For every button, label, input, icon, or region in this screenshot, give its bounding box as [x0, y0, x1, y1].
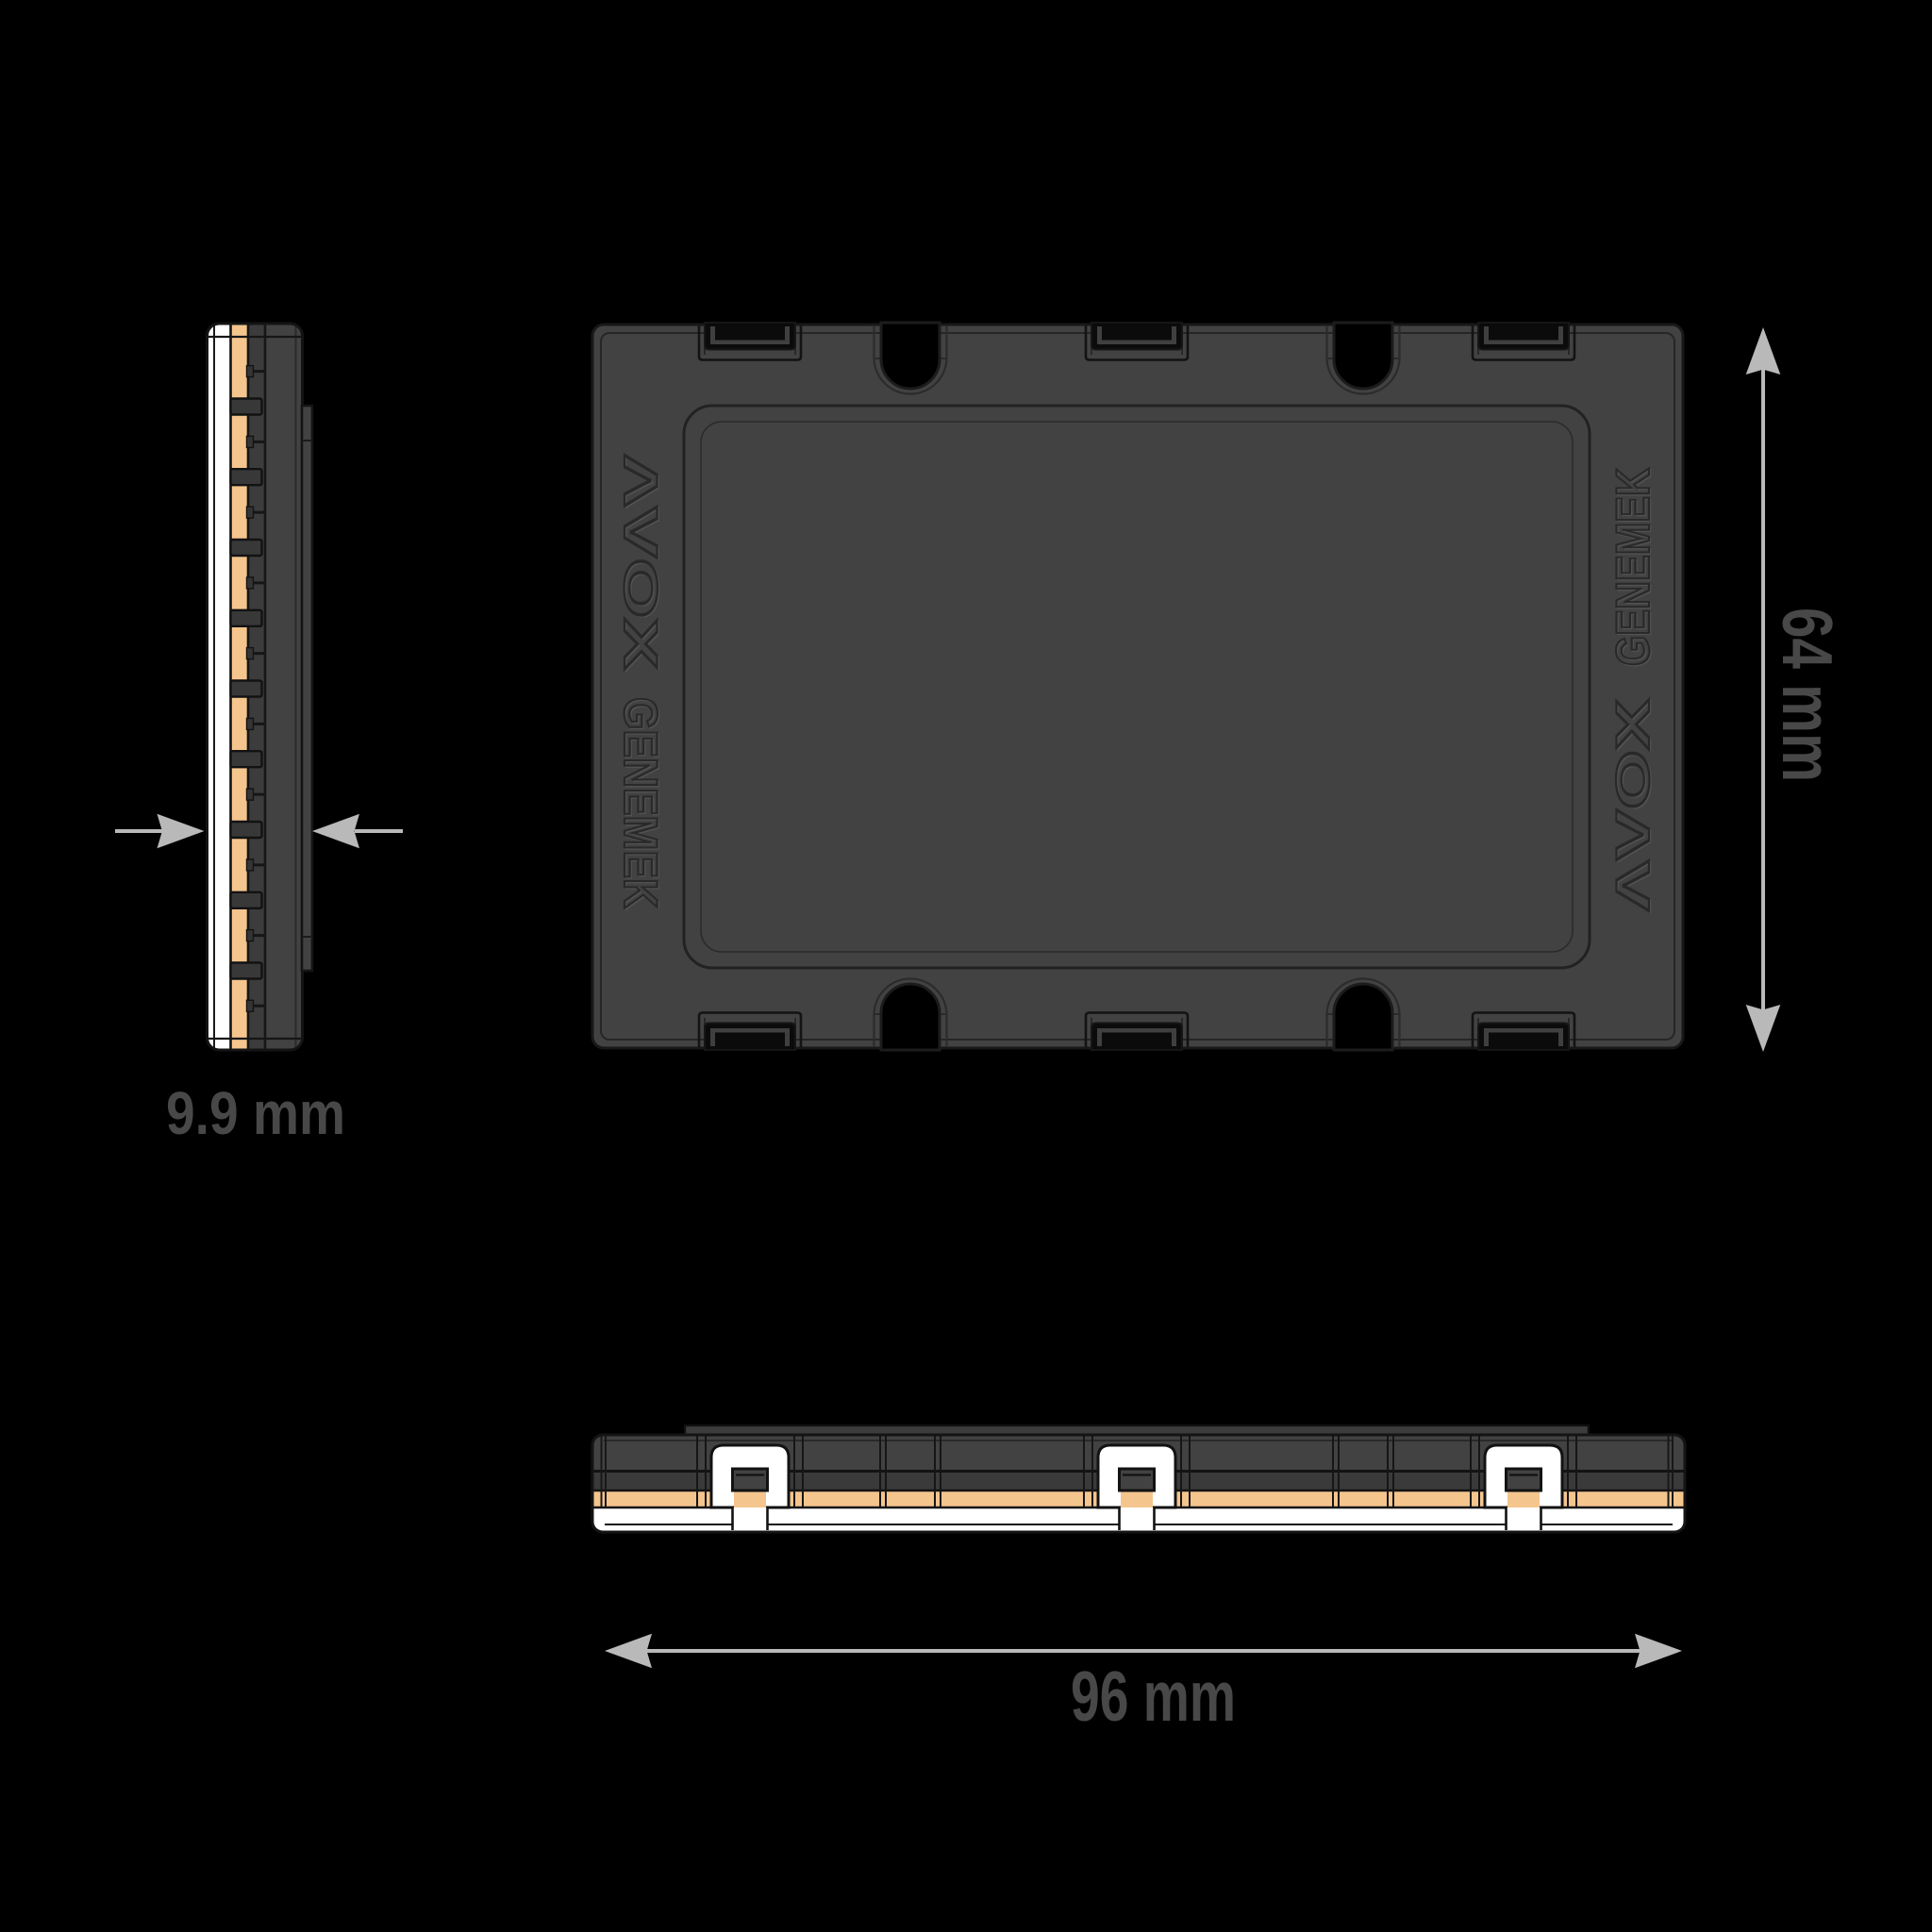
svg-text:ΛVOX: ΛVOX [1607, 699, 1659, 911]
svg-text:ΛVOX: ΛVOX [614, 455, 667, 670]
svg-text:GENEMEK: GENEMEK [1607, 468, 1659, 666]
svg-text:96 mm: 96 mm [1071, 1657, 1236, 1736]
svg-text:64 mm: 64 mm [1768, 608, 1847, 782]
svg-text:GENEMEK: GENEMEK [614, 697, 667, 908]
svg-text:9.9 mm: 9.9 mm [166, 1079, 345, 1147]
